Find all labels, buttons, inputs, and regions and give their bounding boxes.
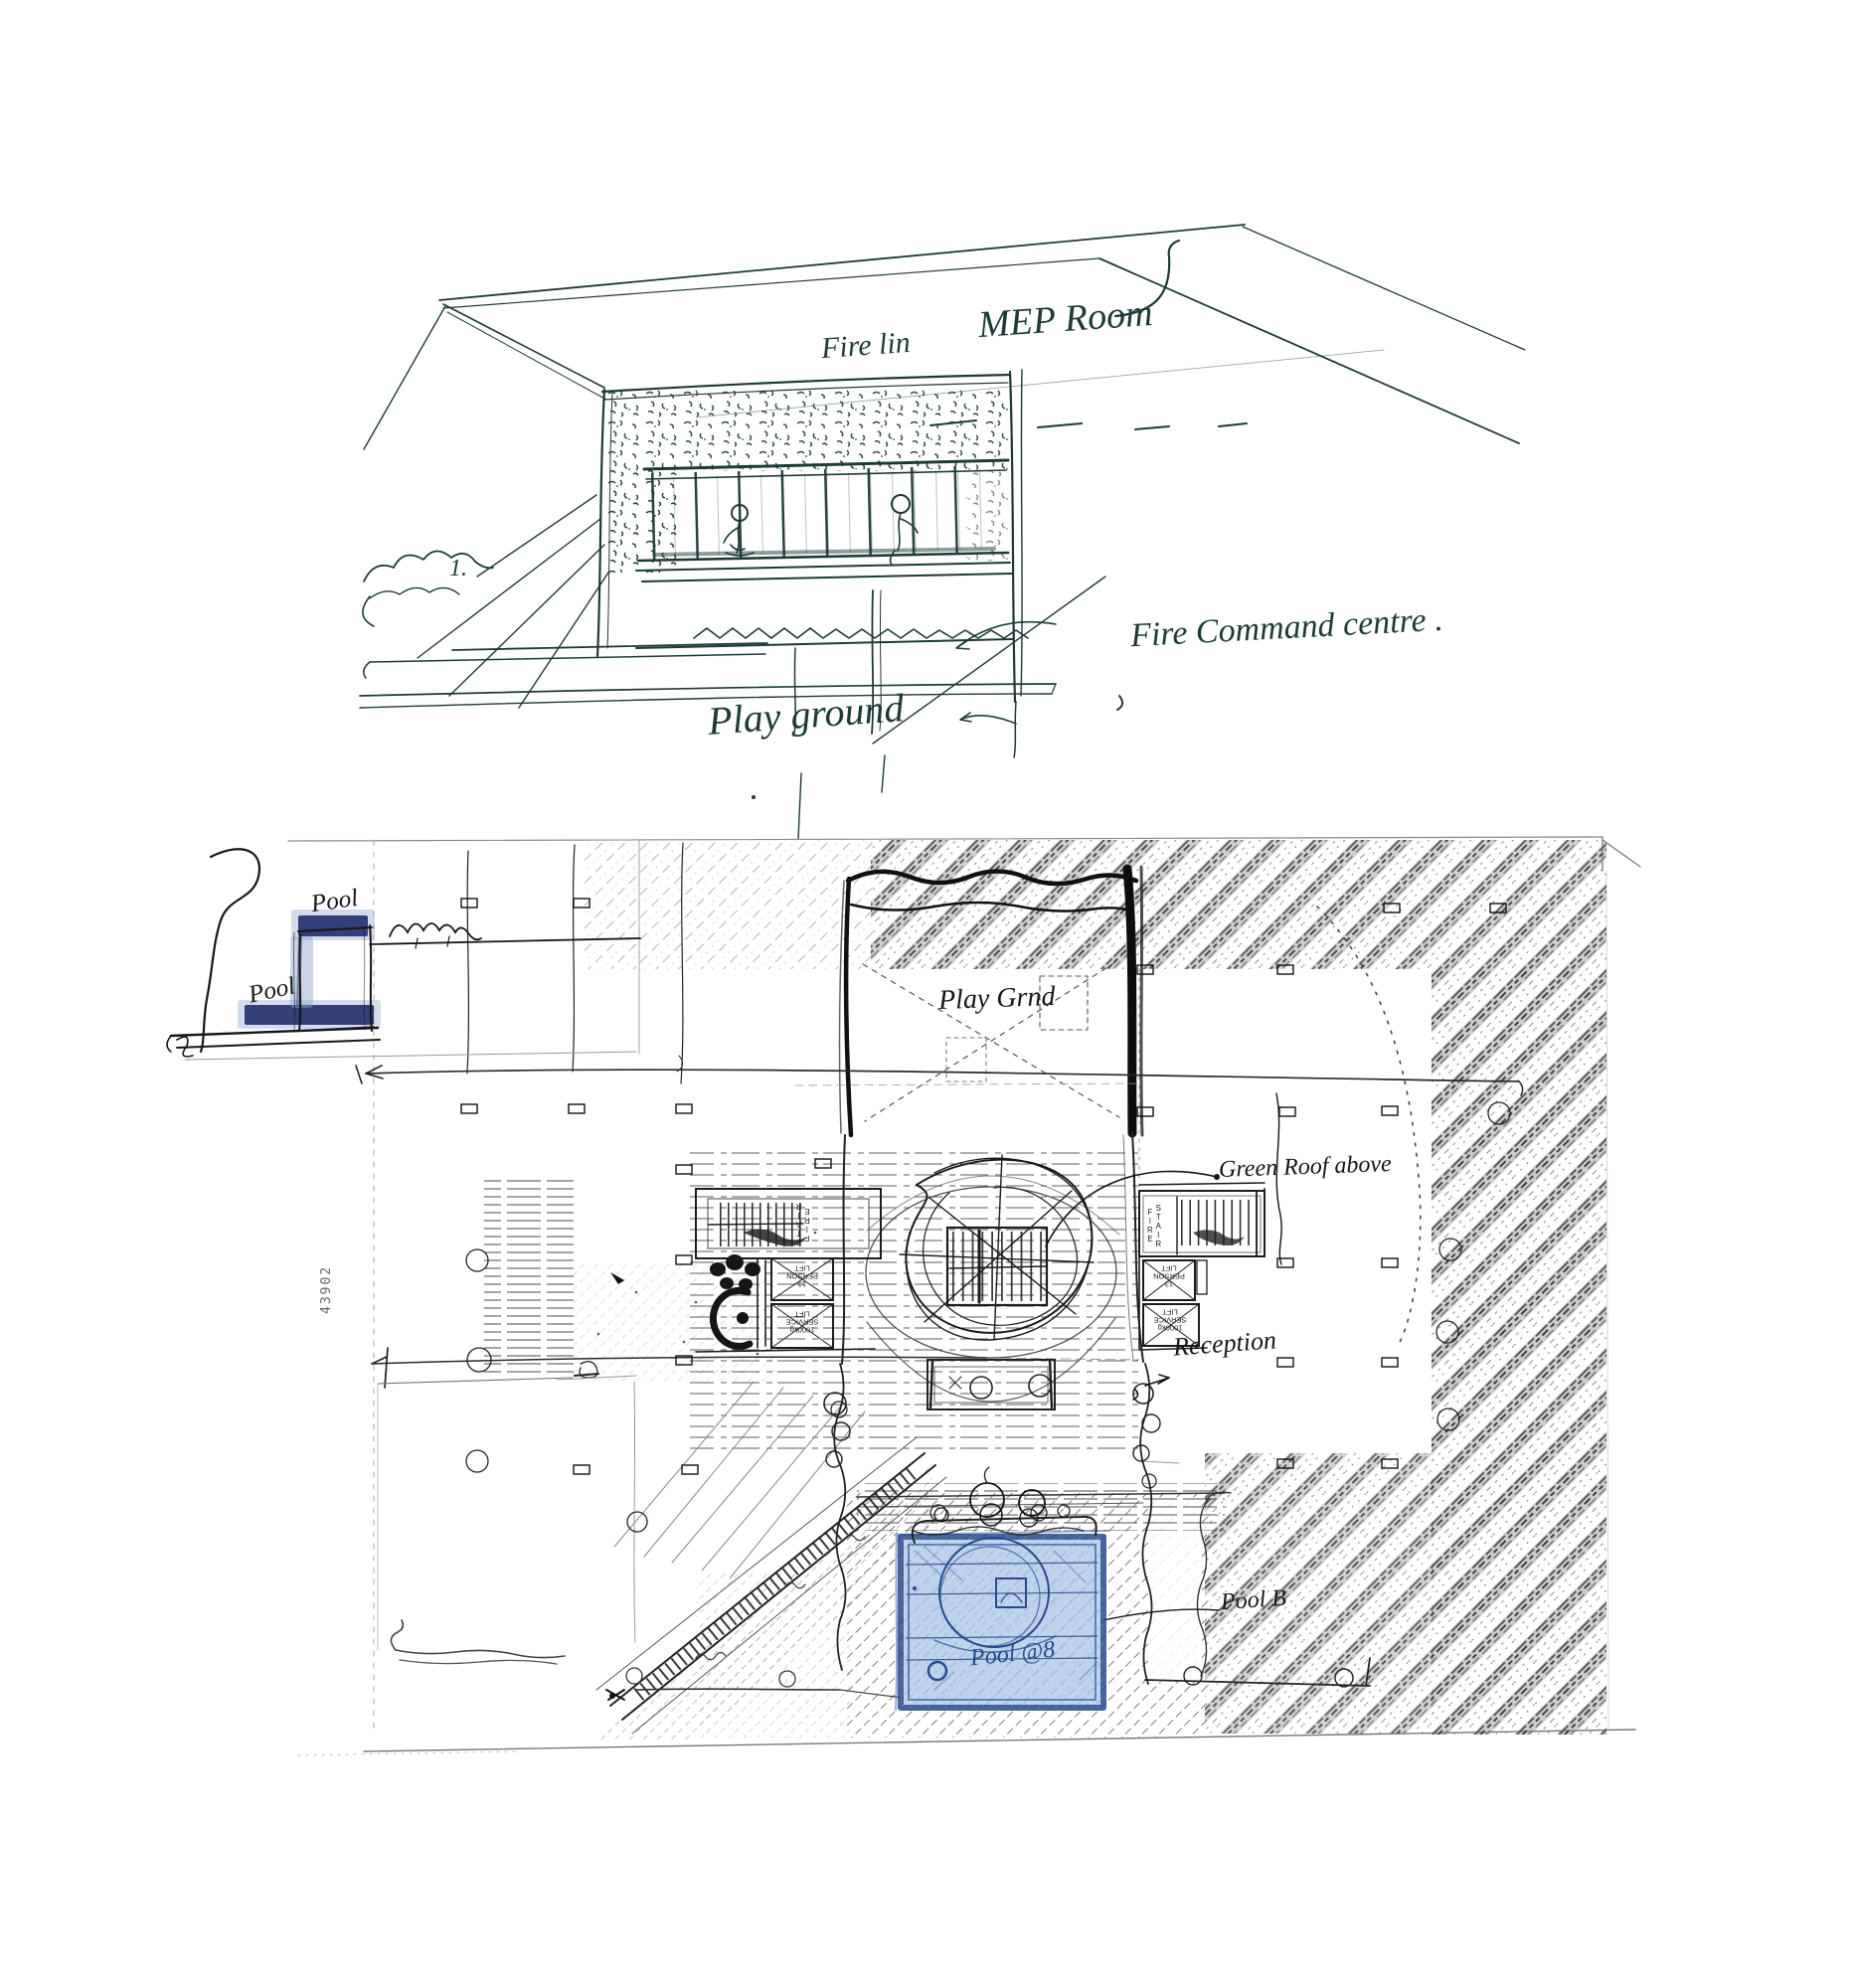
sketch-canvas <box>0 0 1856 1988</box>
right-core <box>1139 1183 1265 1350</box>
sketch-sheet: MEP Room Fire lin Fire Command centre . … <box>0 0 1856 1988</box>
section-sketch-drawing <box>360 225 1525 839</box>
lower-left-room <box>378 1374 636 1664</box>
mini-section-sketch <box>167 849 640 1060</box>
